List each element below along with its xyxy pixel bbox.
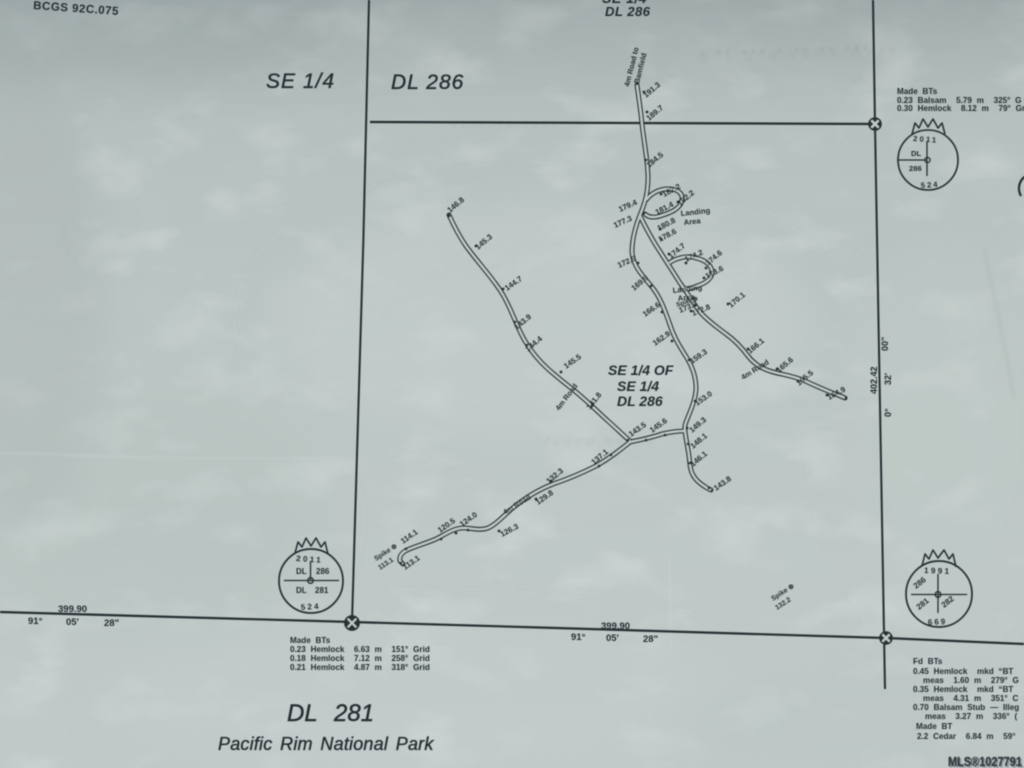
svg-text:0.23 Hemlock 6.63 m 151° Gri: 0.23 Hemlock 6.63 m 151° Grid — [290, 645, 430, 654]
svg-text:Made BTs: Made BTs — [290, 636, 331, 645]
svg-text:Made BTs: Made BTs — [897, 87, 938, 96]
svg-text:32': 32' — [883, 373, 893, 385]
svg-text:669: 669 — [928, 617, 948, 627]
svg-text:2.2 Cedar 6.84 m 59°: 2.2 Cedar 6.84 m 59° — [917, 732, 1015, 741]
svg-text:2011: 2011 — [296, 554, 324, 565]
svg-text:MLS®1027791: MLS®1027791 — [948, 754, 1022, 768]
svg-text:0.18 Hemlock 7.12 m 258° Gri: 0.18 Hemlock 7.12 m 258° Grid — [290, 654, 430, 663]
svg-text:SE 1/4: SE 1/4 — [602, 0, 647, 6]
svg-text:00": 00" — [880, 337, 890, 351]
svg-text:0.45 Hemlock mkd “BT: 0.45 Hemlock mkd “BT — [913, 667, 1013, 676]
svg-text:Pacific Rim National Park: Pacific Rim National Park — [218, 734, 434, 754]
svg-text:281: 281 — [315, 586, 329, 595]
svg-text:524: 524 — [921, 180, 940, 190]
svg-text:DL: DL — [296, 586, 307, 595]
svg-text:SE 1/4: SE 1/4 — [617, 378, 659, 394]
svg-text:2011: 2011 — [913, 134, 939, 145]
svg-text:SE 1/4 OF: SE 1/4 OF — [608, 362, 674, 378]
svg-text:399.90: 399.90 — [601, 621, 630, 632]
svg-text:28": 28" — [104, 618, 119, 629]
svg-text:meas 4.31 m 351° C: meas 4.31 m 351° C — [923, 694, 1018, 703]
svg-text:0.35 Hemlock mkd “BT: 0.35 Hemlock mkd “BT — [913, 685, 1013, 694]
svg-text:DL 286: DL 286 — [605, 4, 651, 19]
svg-text:286: 286 — [909, 164, 922, 173]
svg-text:0°: 0° — [883, 408, 893, 417]
svg-text:05': 05' — [66, 617, 79, 628]
svg-text:0.30 Hemlock 8.12 m 79° Gr: 0.30 Hemlock 8.12 m 79° Gr — [897, 104, 1024, 113]
svg-text:91°: 91° — [571, 632, 586, 643]
svg-text:Made BT: Made BT — [916, 722, 952, 731]
svg-text:DL 286: DL 286 — [391, 71, 464, 94]
svg-text:DL: DL — [287, 700, 318, 727]
svg-text:281: 281 — [333, 700, 374, 727]
svg-text:1991: 1991 — [924, 566, 952, 576]
svg-text:Area: Area — [683, 216, 702, 227]
svg-text:286: 286 — [316, 567, 330, 576]
svg-text:91°: 91° — [28, 616, 43, 627]
svg-text:399.90: 399.90 — [58, 604, 87, 615]
svg-text:28": 28" — [643, 634, 658, 645]
svg-text:DL 286: DL 286 — [617, 393, 663, 409]
svg-text:Fd BTs: Fd BTs — [913, 657, 943, 666]
svg-text:meas 3.27 m 336° (: meas 3.27 m 336° ( — [925, 712, 1017, 721]
svg-text:meas 1.60 m 279° G: meas 1.60 m 279° G — [923, 676, 1019, 685]
svg-text:SE 1/4: SE 1/4 — [266, 70, 335, 93]
svg-text:DL: DL — [911, 149, 921, 158]
svg-text:0.70 Balsam Stub — Illeg: 0.70 Balsam Stub — Illeg — [913, 703, 1019, 712]
svg-text:0.21 Hemlock 4.87 m 318° Gri: 0.21 Hemlock 4.87 m 318° Grid — [290, 663, 430, 672]
svg-text:524: 524 — [301, 602, 322, 612]
svg-text:402.42: 402.42 — [869, 366, 879, 394]
svg-text:DL: DL — [296, 567, 307, 576]
svg-text:05': 05' — [606, 633, 619, 644]
